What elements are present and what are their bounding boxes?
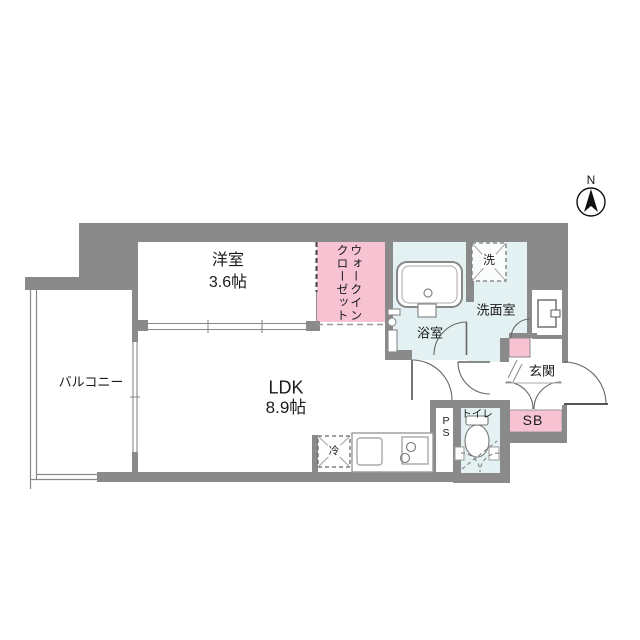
stove-icon <box>402 437 428 464</box>
entrance-label: 玄関 <box>529 365 555 380</box>
sliding-door <box>148 320 306 333</box>
bathroom-label: 浴室 <box>417 327 443 342</box>
pipe-space-line2: S <box>442 427 449 439</box>
laundry-pan-label: 洗 <box>482 254 496 268</box>
washroom-door-arc <box>458 362 490 394</box>
wic-label-line2: クローゼット <box>334 244 348 322</box>
bedroom-label: 洋室 <box>212 252 244 270</box>
storage-cabinet <box>509 338 530 357</box>
sink-icon <box>357 438 382 465</box>
ldk-size-label: 8.9帖 <box>266 398 307 418</box>
utility-box-icon <box>538 300 560 327</box>
floor-plan: 洋室 3.6帖 ウォークインクローゼット バルコニー LDK 8.9帖 浴室 洗… <box>0 0 640 640</box>
toilet-label: トイレ <box>461 408 493 420</box>
refrigerator-label: 冷 <box>328 445 341 457</box>
washroom-label: 洗面室 <box>476 304 515 319</box>
floor-plan-drawing <box>0 0 640 640</box>
compass-icon <box>577 188 605 216</box>
washroom-floor-lower <box>467 338 500 362</box>
kitchen-counter <box>352 433 433 472</box>
shoebox-door-arc-right <box>534 382 561 409</box>
ldk-door-arc <box>412 360 452 400</box>
window-balcony <box>130 342 140 452</box>
balcony-label: バルコニー <box>59 376 124 391</box>
wic-label-line1: ウォークイン <box>348 244 362 322</box>
shoebox-label: SB <box>523 412 544 428</box>
compass-n-label: N <box>587 174 596 188</box>
ldk-label: LDK <box>268 378 303 399</box>
wic-label: ウォークインクローゼット <box>334 244 362 322</box>
bedroom-size-label: 3.6帖 <box>209 274 247 292</box>
front-door-arc <box>564 362 606 404</box>
pipe-space-line1: P <box>442 415 449 427</box>
shoebox-door-arc-left <box>506 382 533 409</box>
pipe-space-label: PS <box>442 415 449 439</box>
